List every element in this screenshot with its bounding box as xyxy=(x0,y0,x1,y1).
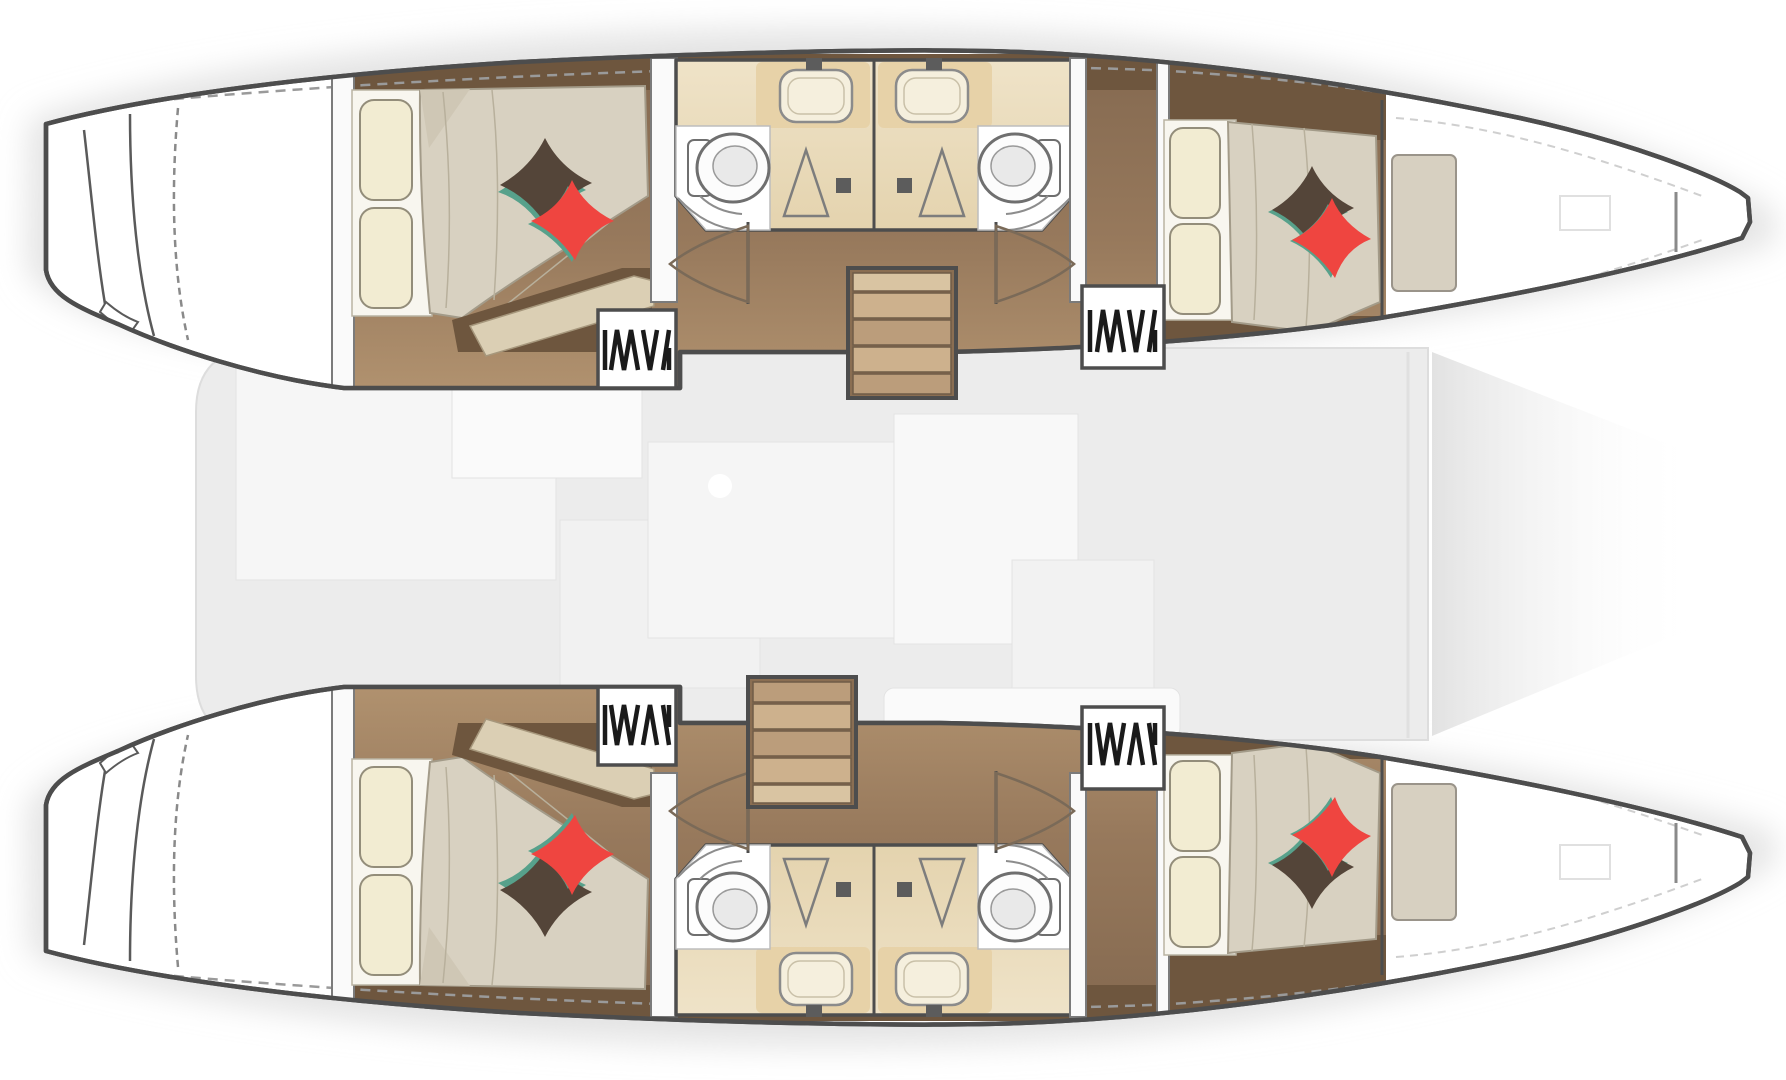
stair-tread xyxy=(853,347,951,372)
stairs-starboard xyxy=(748,677,856,807)
bridgedeck-deck xyxy=(196,348,1760,740)
sink-faint xyxy=(708,474,732,498)
stair-tread xyxy=(753,682,851,702)
floorplan-canvas xyxy=(0,0,1786,1080)
floorplan-svg xyxy=(0,0,1786,1080)
stair-tread xyxy=(753,758,851,783)
stairs-port xyxy=(848,268,956,398)
stair-tread xyxy=(853,293,951,318)
stair-tread xyxy=(853,374,951,394)
foredeck-shading xyxy=(1432,352,1760,736)
stair-tread xyxy=(853,320,951,345)
stair-landing xyxy=(853,273,951,291)
hull-starboard xyxy=(46,683,1750,1025)
salon-table-area xyxy=(648,442,898,638)
stair-tread xyxy=(753,704,851,729)
stair-tread xyxy=(753,731,851,756)
stair-landing xyxy=(753,785,851,803)
